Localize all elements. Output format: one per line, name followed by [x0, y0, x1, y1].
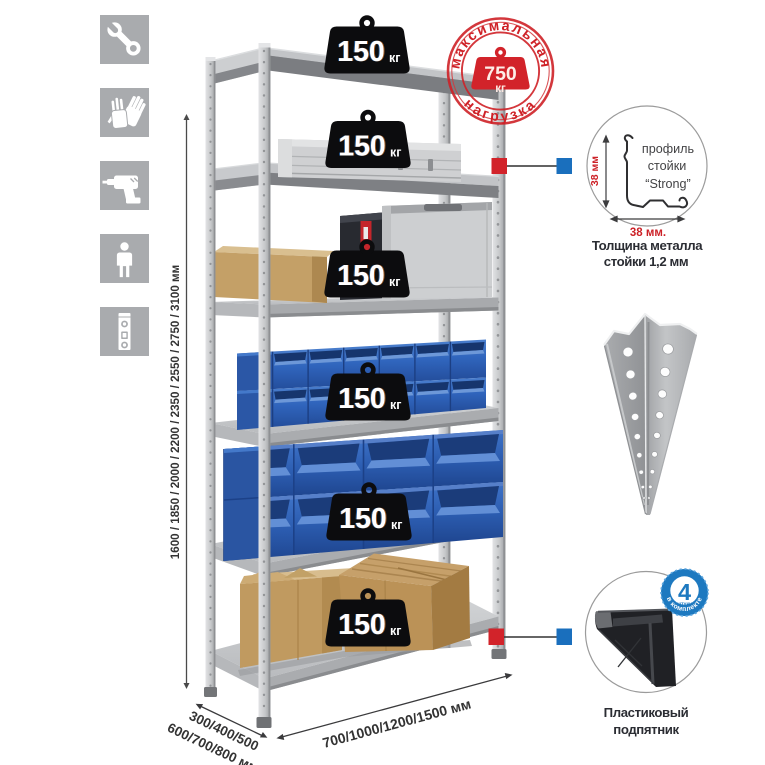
- svg-text:“Strong”: “Strong”: [645, 177, 691, 191]
- svg-text:стойки: стойки: [648, 159, 687, 173]
- svg-text:Пластиковый: Пластиковый: [604, 705, 689, 720]
- svg-text:профиль: профиль: [642, 142, 695, 156]
- svg-text:38 мм: 38 мм: [589, 156, 601, 186]
- svg-text:подпятник: подпятник: [613, 722, 679, 737]
- svg-text:1600 / 1850 / 2000 / 2200 / 23: 1600 / 1850 / 2000 / 2200 / 2350 / 2550 …: [169, 265, 182, 559]
- svg-text:кг: кг: [495, 83, 506, 95]
- svg-text:стойки 1,2 мм: стойки 1,2 мм: [604, 254, 688, 269]
- svg-text:750: 750: [484, 63, 517, 85]
- svg-text:Толщина металла: Толщина металла: [592, 238, 703, 253]
